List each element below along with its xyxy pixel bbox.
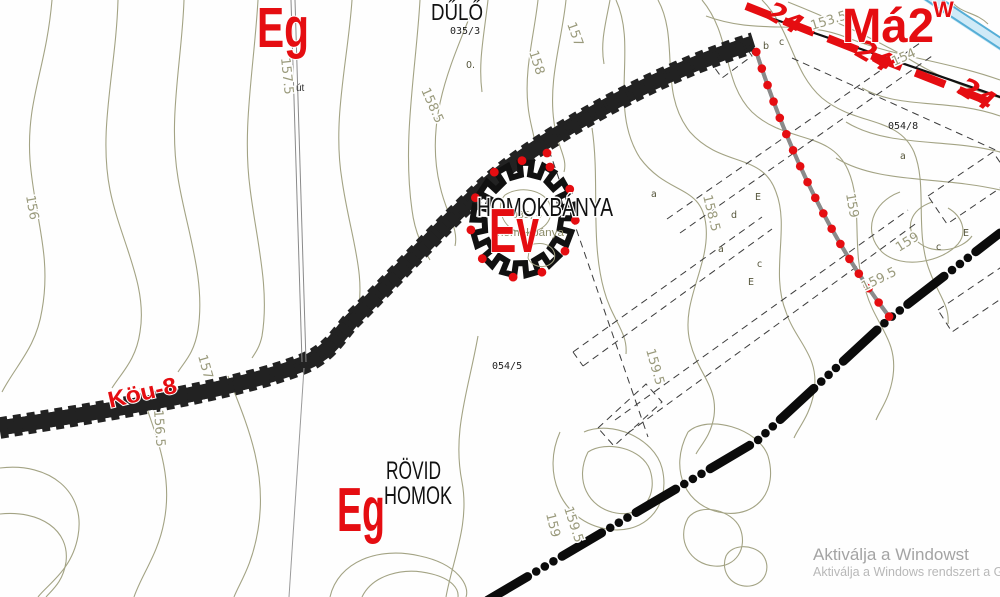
boundary-dash (976, 233, 1000, 252)
road-surface (0, 43, 753, 428)
contour-elevation-label: 159 (893, 230, 922, 256)
zone-ev: Ev (489, 197, 539, 266)
boundary-dot (754, 436, 763, 445)
track-red-dot (769, 97, 778, 106)
boundary-dot (964, 254, 973, 263)
mine-red-dot (543, 149, 552, 158)
boundary-dash (710, 445, 750, 468)
contour-line (603, 0, 610, 64)
track-continuation (289, 368, 304, 597)
contour-line (339, 0, 360, 320)
windows-activation-watermark-subtitle: Aktiválja a Windows rendszert a Gépházba (813, 565, 1000, 579)
homok-label: HOMOK (384, 482, 452, 510)
contour-elevation-label: 158.5 (417, 86, 446, 126)
dashed-boundary-line (615, 210, 908, 420)
boundary-dot (689, 475, 698, 484)
contour-elevation-label: 156.5 (150, 409, 168, 447)
land-use-letter: c (757, 259, 762, 270)
contour-elevation-label: 158 (525, 49, 547, 77)
boundary-dot (948, 266, 957, 275)
contour-line (0, 467, 79, 597)
mine-red-dot (518, 156, 527, 165)
contour-elevation-label: 157.5 (277, 57, 296, 96)
contour-line (408, 0, 430, 260)
track-red-dot (775, 114, 784, 123)
dulo-label: DŰLŐ (431, 0, 483, 25)
road-casing (0, 43, 753, 428)
track-red-dot (845, 255, 854, 264)
mine-red-dot (490, 168, 499, 177)
boundary-dash (780, 388, 814, 419)
boundary-dot (615, 518, 624, 527)
boundary-dot (761, 429, 770, 438)
track-red-dot (752, 48, 761, 57)
track-red-dot (819, 209, 828, 218)
track-red-dot (789, 146, 798, 155)
boundary-dot (532, 567, 541, 576)
contour-line (724, 547, 766, 586)
mine-red-dot (509, 273, 518, 282)
boundary-dot (895, 306, 904, 315)
boundary-dot (697, 470, 706, 479)
contour-elevation-label: 159 (842, 192, 861, 219)
zone-ma2: Má2 (842, 0, 934, 53)
track-red-dot (758, 64, 767, 73)
w-mark: W (933, 0, 954, 22)
boundary-dot (824, 370, 833, 379)
contour-elevation-label: 159.5 (859, 265, 899, 295)
land-use-letter: E (963, 228, 969, 239)
boundary-dot (817, 377, 826, 386)
track-red-dot (885, 312, 894, 321)
land-use-letter: 0. (466, 60, 475, 71)
contour-elevation-label: 156 (22, 194, 41, 221)
boundary-dash (636, 489, 676, 512)
boundary-dot (769, 422, 778, 431)
land-use-letter: b (763, 41, 769, 52)
contour-line (228, 376, 261, 597)
track-red-dot (855, 269, 864, 278)
parcel-number: 054/8 (888, 121, 918, 132)
contour-line (872, 192, 963, 262)
parcel-number: 035/3 (450, 26, 480, 37)
boundary-dot (832, 364, 841, 373)
boundary-dash (488, 577, 528, 597)
contour-line (446, 336, 478, 597)
parcel-number: 054/5 (492, 361, 522, 372)
road-edge-dashes (0, 46, 753, 431)
boundary-dash (843, 330, 877, 361)
ut-label: út (296, 83, 305, 94)
contour-line (846, 122, 1000, 152)
contour-elevation-label: 159 (542, 511, 563, 539)
track-red-dot (836, 240, 845, 249)
contour-line (174, 0, 199, 372)
land-use-letter: a (651, 189, 657, 200)
contour-line (0, 513, 66, 597)
contour-line (583, 446, 653, 513)
boundary-dot (541, 562, 550, 571)
land-use-letter: d (731, 210, 737, 221)
contour-line (106, 0, 142, 388)
map-canvas: 242424 156157156.5157.5158.5158157153.51… (0, 0, 1000, 597)
land-use-letter: c (936, 242, 941, 253)
dashed-boundary-line (573, 217, 762, 352)
boundary-dot (549, 557, 558, 566)
contour-line (362, 571, 458, 597)
track-red-dot (827, 224, 836, 233)
boundary-dot (956, 260, 965, 269)
contour-elevation-label: 159.5 (642, 347, 667, 387)
dashed-boundary-line (573, 352, 583, 366)
contour-elevation-label: 157 (563, 20, 586, 48)
mine-red-dot (467, 226, 476, 235)
boundary-24-mark: 24 (952, 72, 1000, 118)
rovid-label: RÖVID (386, 457, 441, 485)
track-red-dot (782, 130, 791, 139)
track-red-dot (811, 194, 820, 203)
contour-line (527, 0, 538, 154)
track-red-dot (803, 178, 812, 187)
mine-red-dot (546, 163, 555, 172)
mine-red-dot (538, 268, 547, 277)
contour-lines (0, 0, 1000, 597)
boundary-dot (680, 480, 689, 489)
boundary-dot (606, 523, 615, 532)
mine-red-dot (561, 247, 570, 256)
track-red-dot (874, 298, 883, 307)
dashed-boundary-line (583, 229, 772, 366)
track-red-dot (796, 162, 805, 171)
land-use-letter: E (755, 192, 761, 203)
land-use-letter: c (779, 37, 784, 48)
thick-dashdot-boundary (488, 233, 1000, 597)
contour-elevation-labels: 156157156.5157.5158.5158157153.5154158.5… (22, 9, 922, 545)
track-red-dot (763, 81, 772, 90)
contour-line (684, 509, 743, 566)
zone-eg-bottom: Eg (337, 476, 385, 545)
land-use-letter: E (748, 277, 754, 288)
land-use-letter: a (900, 151, 906, 162)
contour-elevation-label: 157 (194, 353, 215, 381)
boundary-dot (623, 513, 632, 522)
contour-line (592, 128, 626, 354)
cadastral-map: 242424 156157156.5157.5158.5158157153.51… (0, 0, 1000, 597)
land-use-letter: a (718, 244, 724, 255)
contour-line (330, 553, 467, 597)
contour-elevation-label: 159.5 (560, 505, 586, 545)
contour-elevation-label: 158.5 (699, 193, 723, 233)
windows-activation-watermark-title: Aktiválja a Windowst (813, 545, 969, 565)
zone-eg-top: Eg (257, 0, 309, 60)
mine-red-dot (478, 254, 487, 263)
